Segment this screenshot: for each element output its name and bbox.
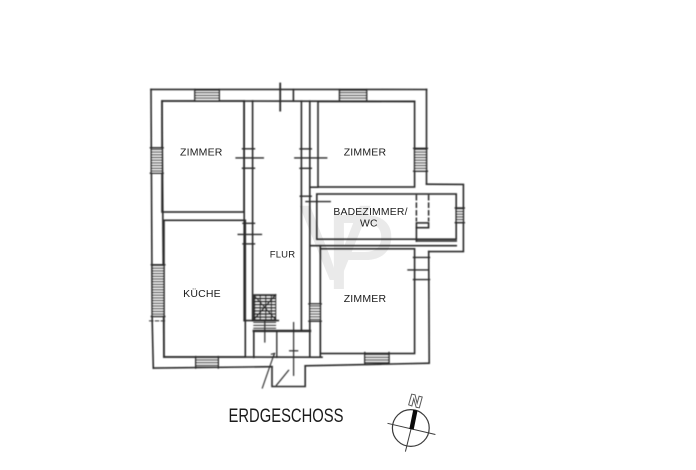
svg-text:ZIMMER: ZIMMER [180,146,223,158]
svg-text:BADEZIMMER/: BADEZIMMER/ [333,207,407,218]
svg-text:WC: WC [360,219,378,230]
svg-text:KÜCHE: KÜCHE [183,288,221,300]
svg-text:ZIMMER: ZIMMER [344,146,387,158]
svg-text:ZIMMER: ZIMMER [344,293,387,305]
svg-text:ERDGESCHOSS: ERDGESCHOSS [229,406,344,427]
svg-text:FLUR: FLUR [270,249,296,260]
